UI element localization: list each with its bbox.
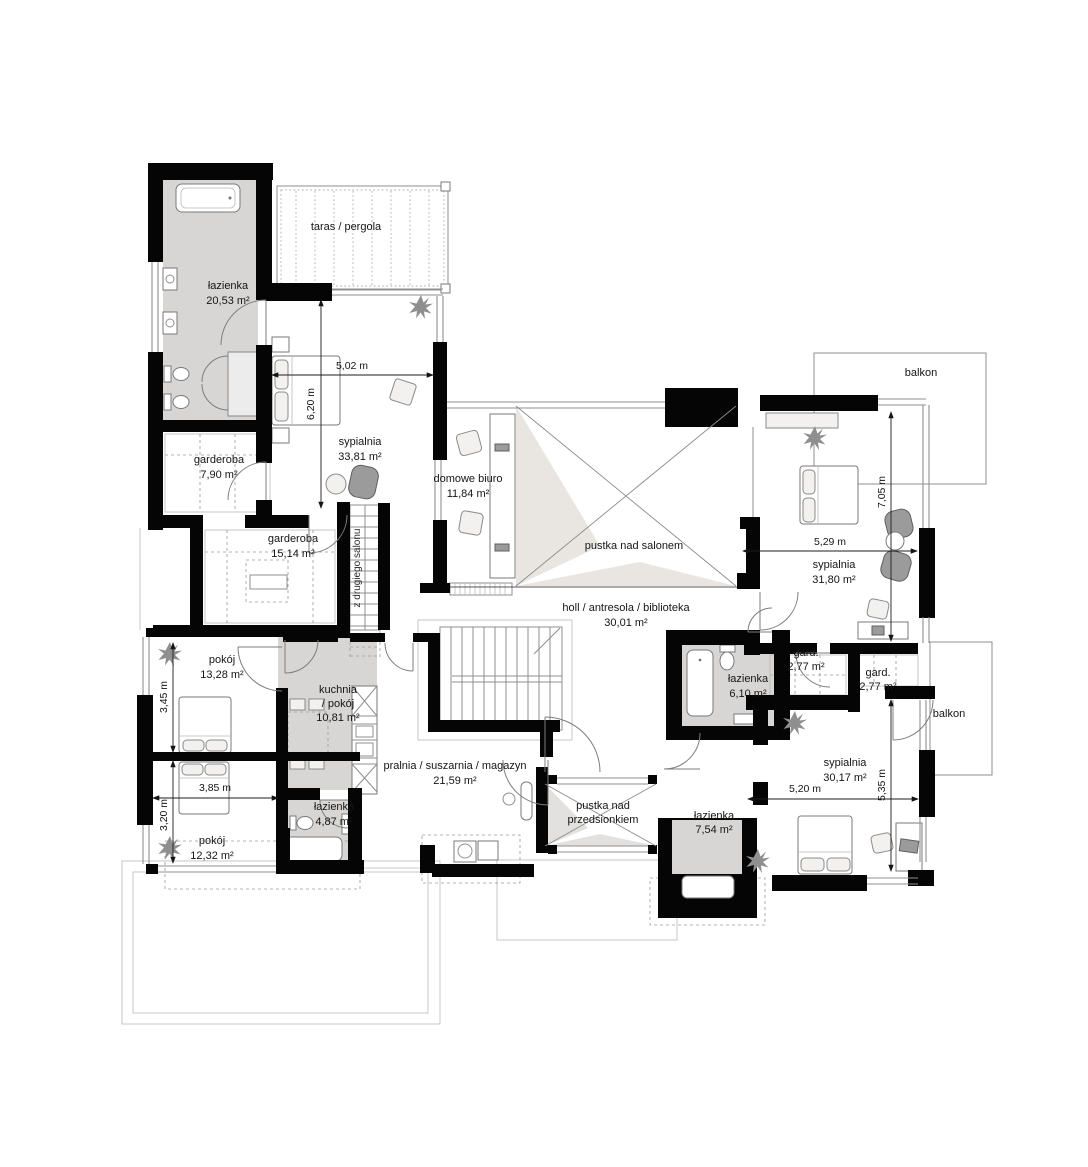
bidet-master [164, 394, 189, 410]
label-lazienka-4: łazienka [694, 810, 735, 822]
area-sypialnia-3: 30,17 m² [823, 772, 867, 784]
label-sypialnia-3: sypialnia [824, 757, 868, 769]
dim-320: 3,20 m [158, 799, 170, 831]
shelf-bedroom-2 [766, 413, 838, 428]
plant-icon [158, 642, 182, 666]
label-gard-2: gard. [865, 667, 890, 679]
armchairs-2 [879, 507, 915, 583]
bed-2 [800, 466, 858, 524]
balcony-top-outline [814, 353, 986, 484]
area-pokoj-2: 12,32 m² [190, 850, 234, 862]
desk-2 [858, 598, 908, 639]
bathtub-master [176, 184, 240, 212]
label-lazienka-master: łazienka [208, 280, 249, 292]
area-holl: 30,01 m² [604, 617, 648, 629]
stairs-note: z drugiego salonu [352, 529, 363, 608]
label-kuchnia-2: / pokój [322, 698, 354, 710]
office-chair-2 [458, 510, 483, 535]
area-lazienka-2: 6,10 m² [729, 688, 767, 700]
label-balkon-1: balkon [905, 367, 937, 379]
dim-620: 6,20 m [305, 388, 317, 420]
sink-2 [734, 714, 756, 724]
label-holl: holl / antresola / biblioteka [562, 602, 690, 614]
area-lazienka-4: 7,54 m² [695, 824, 733, 836]
office-desk [490, 414, 515, 578]
desk-chair-1 [389, 378, 417, 406]
area-lazienka-3: 4,87 m² [315, 816, 353, 828]
dim-345: 3,45 m [158, 681, 170, 713]
label-taras: taras / pergola [311, 221, 382, 233]
toilet-2 [720, 645, 735, 670]
floor-plan-drawing: 5,02 m 6,20 m 5,29 m 7,05 m 3,45 m 3,85 … [0, 0, 1088, 1167]
area-pokoj-1: 13,28 m² [200, 669, 244, 681]
dim-385: 3,85 m [199, 782, 231, 794]
toilet-master [164, 366, 189, 382]
area-gard-2: 2,77 m² [859, 681, 897, 693]
bathtub-2 [687, 650, 713, 716]
area-garderoba-2: 15,14 m² [271, 548, 315, 560]
bed-4 [179, 697, 231, 753]
dim-520: 5,20 m [789, 783, 821, 795]
area-lazienka-master: 20,53 m² [206, 295, 250, 307]
label-pustka-salon: pustka nad salonem [585, 540, 683, 552]
dim-705: 7,05 m [876, 476, 888, 508]
area-kuchnia: 10,81 m² [316, 712, 360, 724]
label-pokoj-1: pokój [209, 654, 235, 666]
pergola [277, 182, 450, 293]
label-garderoba-2: garderoba [268, 533, 319, 545]
label-biuro: domowe biuro [433, 473, 502, 485]
bathtub-3 [284, 837, 342, 861]
area-pralnia: 21,59 m² [433, 775, 477, 787]
label-gard-1: gard. [793, 647, 818, 659]
label-garderoba-1: garderoba [194, 454, 245, 466]
label-lazienka-2: łazienka [728, 673, 769, 685]
area-biuro: 11,84 m² [447, 488, 490, 500]
label-lazienka-3: łazienka [314, 801, 355, 813]
label-kuchnia-1: kuchnia [319, 684, 358, 696]
label-sypialnia-2: sypialnia [813, 559, 857, 571]
toilet-3 [290, 816, 313, 830]
label-pustka-przeds-2: przedsionkiem [568, 814, 639, 826]
label-balkon-2: balkon [933, 708, 965, 720]
area-sypialnia-1: 33,81 m² [338, 451, 382, 463]
shelf-hatch-office [450, 583, 512, 595]
floor-plan-page: 5,02 m 6,20 m 5,29 m 7,05 m 3,45 m 3,85 … [0, 0, 1088, 1167]
armchair-1 [326, 464, 380, 501]
label-pokoj-2: pokój [199, 835, 225, 847]
plant-icon [803, 426, 827, 450]
plant-icon [158, 836, 182, 860]
dim-535: 5,35 m [876, 769, 888, 801]
desk-3 [870, 823, 922, 871]
bed-3 [798, 816, 852, 874]
washer-dryer [454, 841, 498, 862]
dim-502: 5,02 m [336, 360, 368, 372]
area-sypialnia-2: 31,80 m² [812, 574, 856, 586]
office-chair-1 [456, 430, 483, 457]
underlay [122, 180, 992, 1024]
label-pustka-przeds-1: pustka nad [576, 800, 630, 812]
ironing-board [503, 782, 532, 820]
plant-icon [409, 295, 433, 319]
label-sypialnia-1: sypialnia [339, 436, 383, 448]
area-garderoba-1: 7,90 m² [200, 469, 238, 481]
dim-529: 5,29 m [814, 536, 846, 548]
area-gard-1: 2,77 m² [787, 661, 825, 673]
label-pralnia: pralnia / suszarnia / magazyn [383, 760, 526, 772]
kitchen-counter [352, 686, 377, 794]
